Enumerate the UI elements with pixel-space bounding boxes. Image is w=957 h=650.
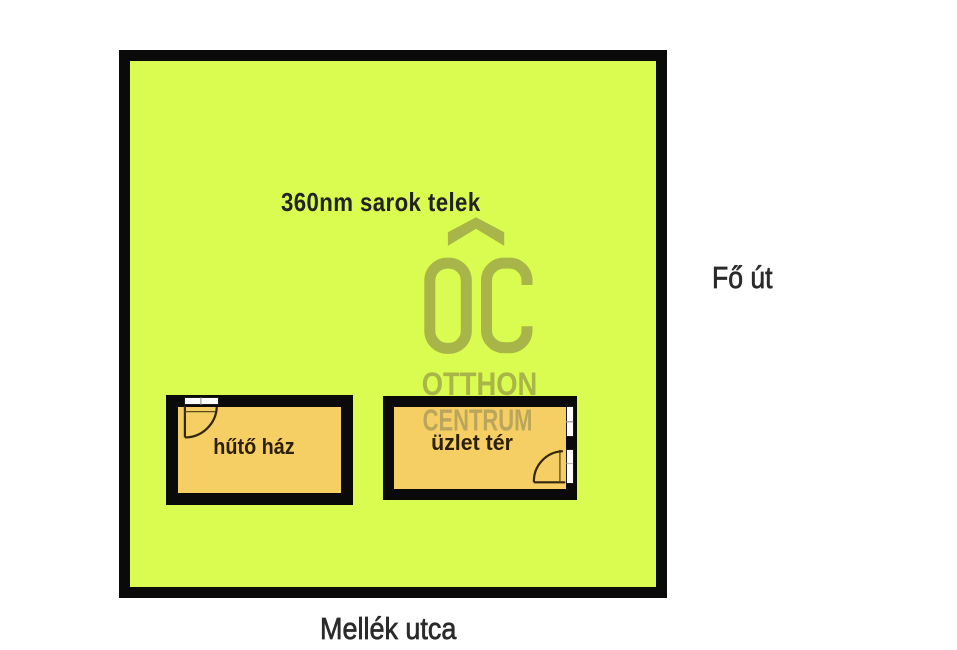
svg-text:CENTRUM: CENTRUM bbox=[423, 403, 533, 437]
svg-text:OTTHON: OTTHON bbox=[422, 367, 538, 403]
